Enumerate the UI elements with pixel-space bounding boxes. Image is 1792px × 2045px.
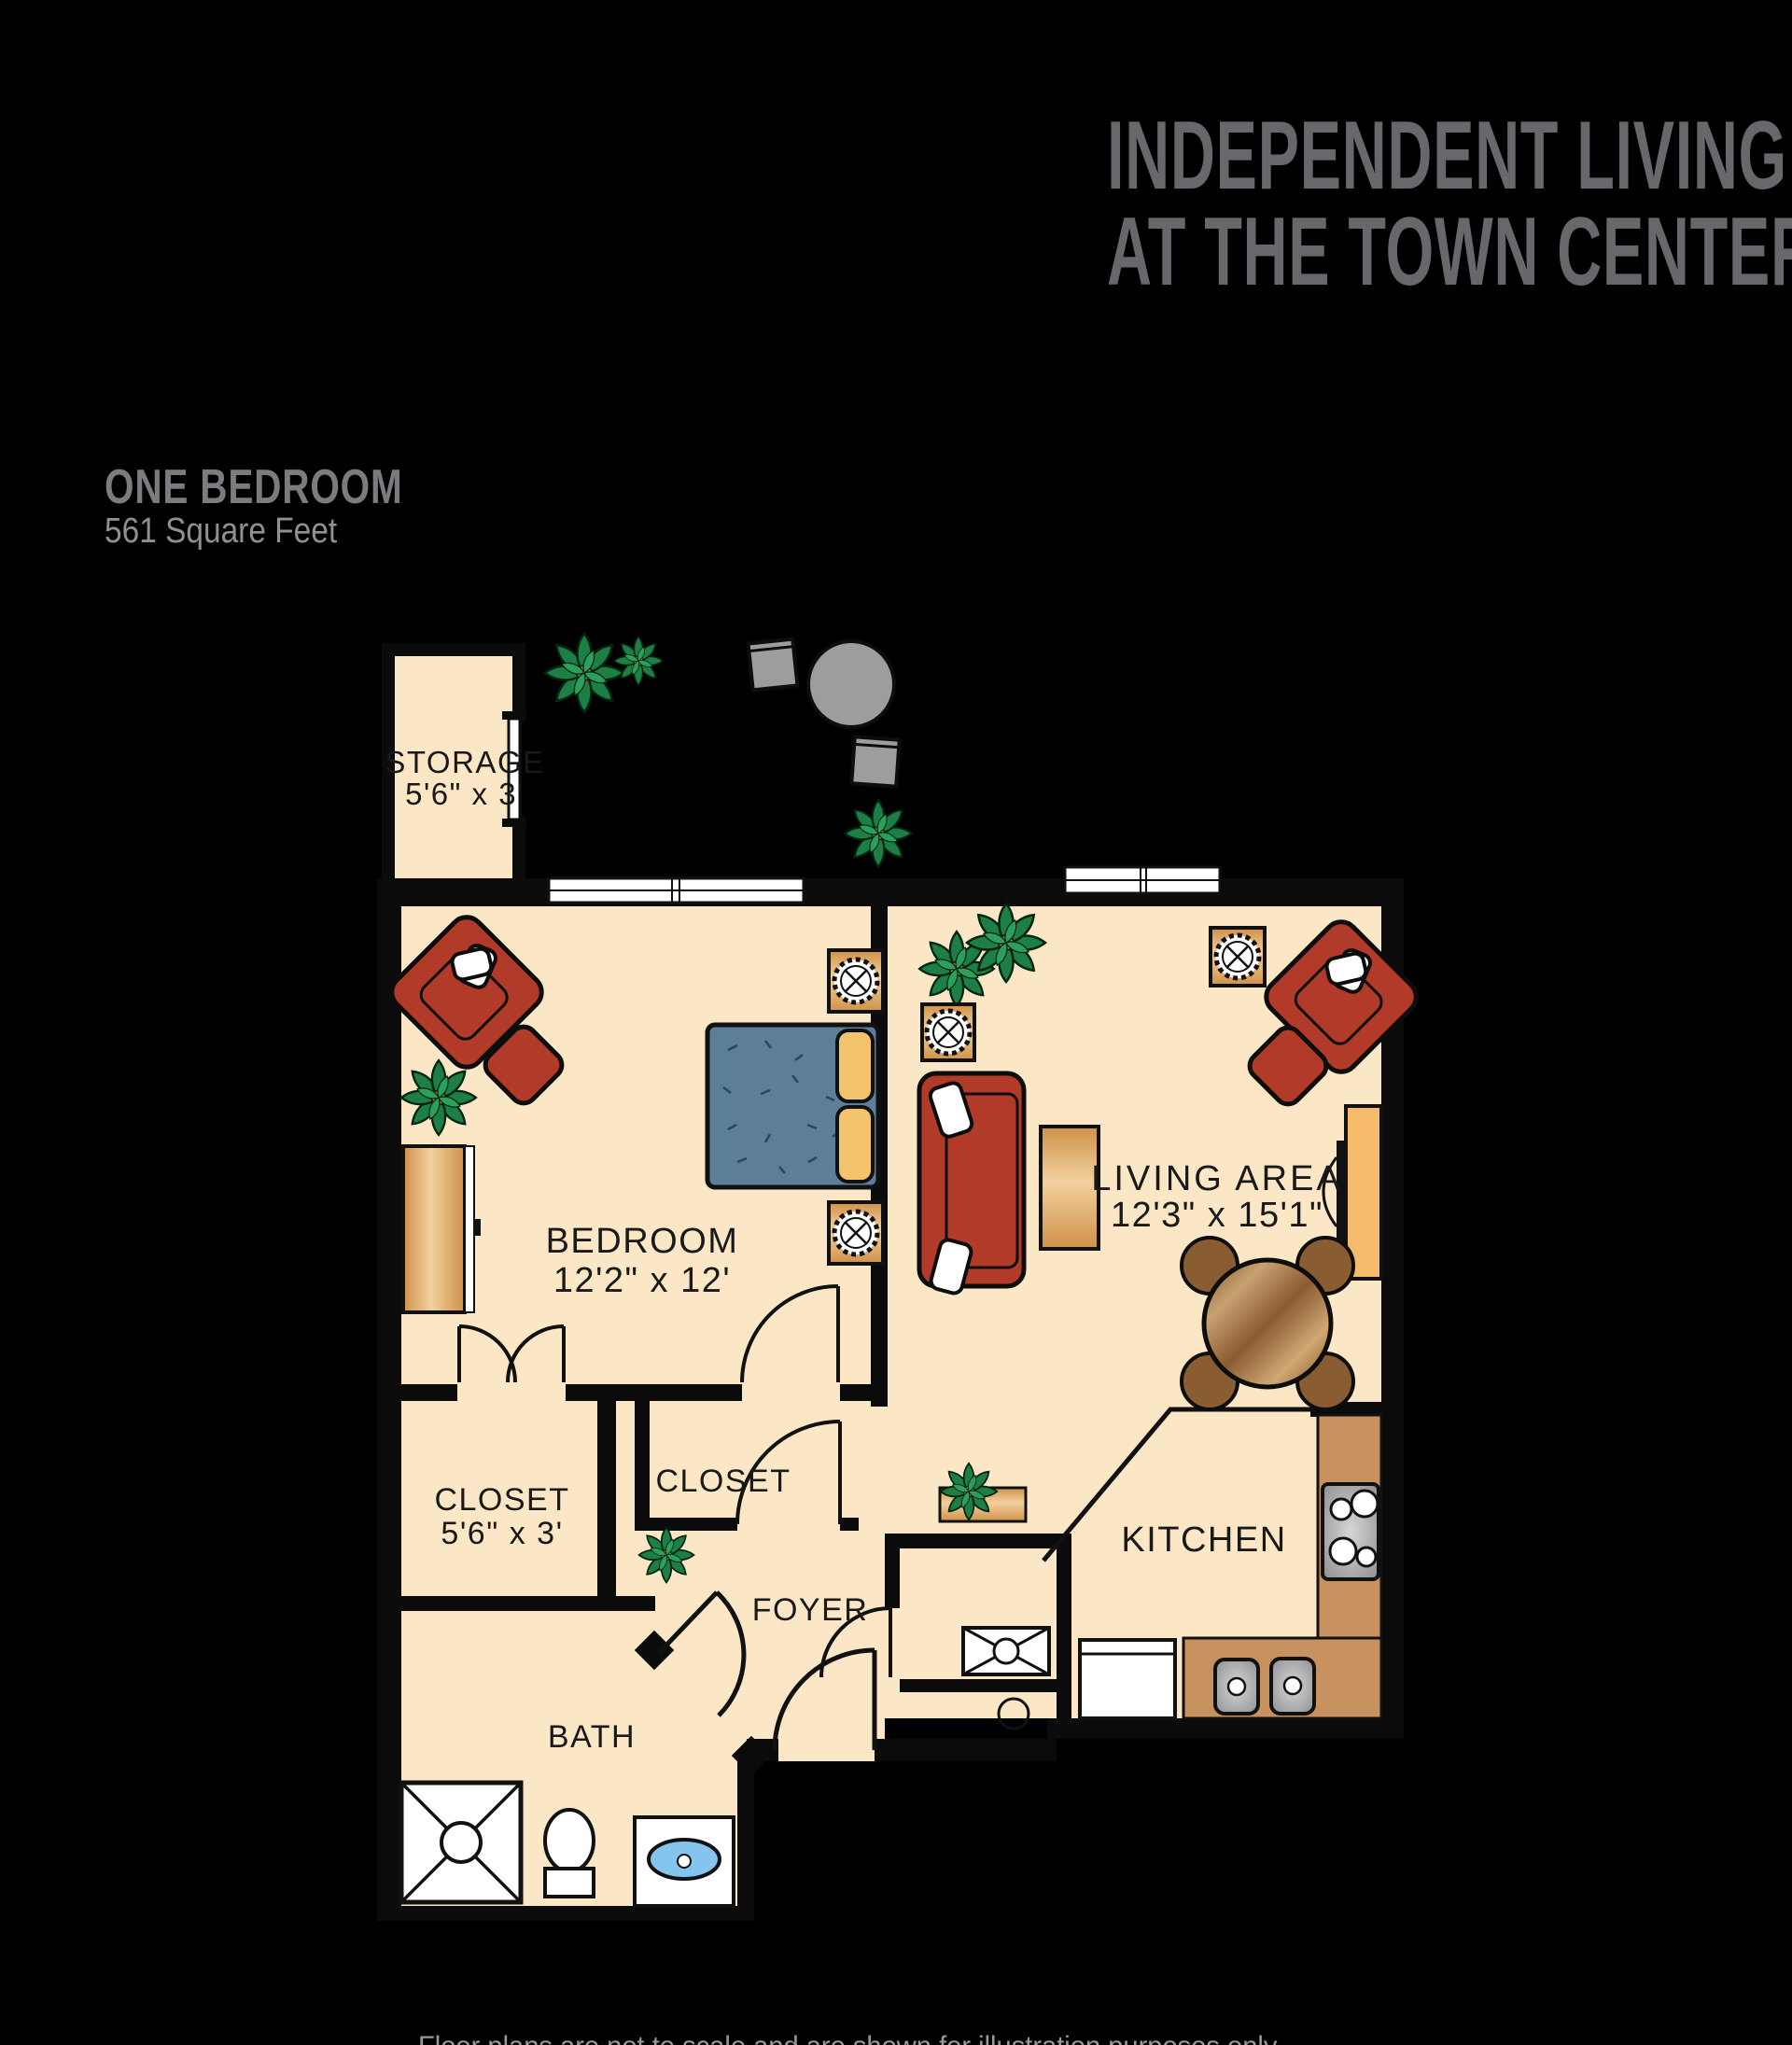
lamp-icon <box>927 1011 970 1054</box>
sofa <box>919 1073 1024 1295</box>
bed <box>707 1025 878 1187</box>
closet-hall-label: CLOSET <box>655 1464 791 1499</box>
nightstand <box>829 1202 883 1264</box>
closet-bedroom-label: CLOSET <box>434 1482 569 1518</box>
closet-bedroom-dims: 5'6" x 3' <box>441 1516 563 1551</box>
lamp-icon <box>834 1212 877 1254</box>
patio-chair-icon <box>851 736 899 786</box>
plant-icon <box>545 634 623 712</box>
living-dims: 12'3" x 15'1" <box>1111 1196 1323 1235</box>
patio-set <box>545 634 912 867</box>
bed-pillow <box>837 1030 873 1101</box>
plant-icon <box>401 1060 476 1135</box>
vanity-sink <box>635 1817 734 1906</box>
plant-icon <box>614 637 663 685</box>
plant-icon <box>967 903 1045 982</box>
floorplan-drawing: STORAGE 5'6" x 3' BEDROOM 12'2" x 12' LI… <box>0 0 1792 2045</box>
bed-pillow <box>837 1107 873 1182</box>
plant-icon <box>941 1464 997 1520</box>
bath-label: BATH <box>548 1719 636 1755</box>
end-table <box>1211 928 1265 986</box>
toilet-icon <box>545 1810 594 1897</box>
lamp-icon <box>1216 935 1259 978</box>
stove-icon <box>1323 1484 1379 1579</box>
plant-icon <box>845 800 911 866</box>
storage-label: STORAGE <box>385 745 544 779</box>
bedroom-label: BEDROOM <box>546 1222 739 1261</box>
dining-set <box>1182 1238 1353 1409</box>
end-table <box>922 1004 974 1060</box>
washer-dryer-icon <box>963 1628 1049 1674</box>
coffee-table <box>1041 1127 1099 1249</box>
nightstand <box>829 950 883 1012</box>
dining-table-icon <box>1204 1260 1331 1387</box>
storage-dims: 5'6" x 3' <box>405 777 525 811</box>
dresser <box>403 1146 481 1312</box>
patio-table-icon <box>808 641 894 727</box>
bottom-caption: Floor plans are not to scale and are sho… <box>418 2031 1595 2045</box>
living-label: LIVING AREA <box>1091 1159 1343 1198</box>
patio-chair-icon <box>749 639 798 691</box>
refrigerator-icon <box>1080 1640 1175 1718</box>
shower-icon <box>401 1783 521 1902</box>
bedroom-window <box>549 878 804 903</box>
living-window <box>1065 867 1220 893</box>
lamp-icon <box>834 959 877 1002</box>
plant-icon <box>639 1528 694 1583</box>
foyer-label: FOYER <box>752 1592 869 1628</box>
kitchen-label: KITCHEN <box>1121 1520 1286 1560</box>
bedroom-dims: 12'2" x 12' <box>553 1261 731 1300</box>
floorplan-canvas: INDEPENDENT LIVING AT THE TOWN CENTER ON… <box>0 0 1792 2045</box>
